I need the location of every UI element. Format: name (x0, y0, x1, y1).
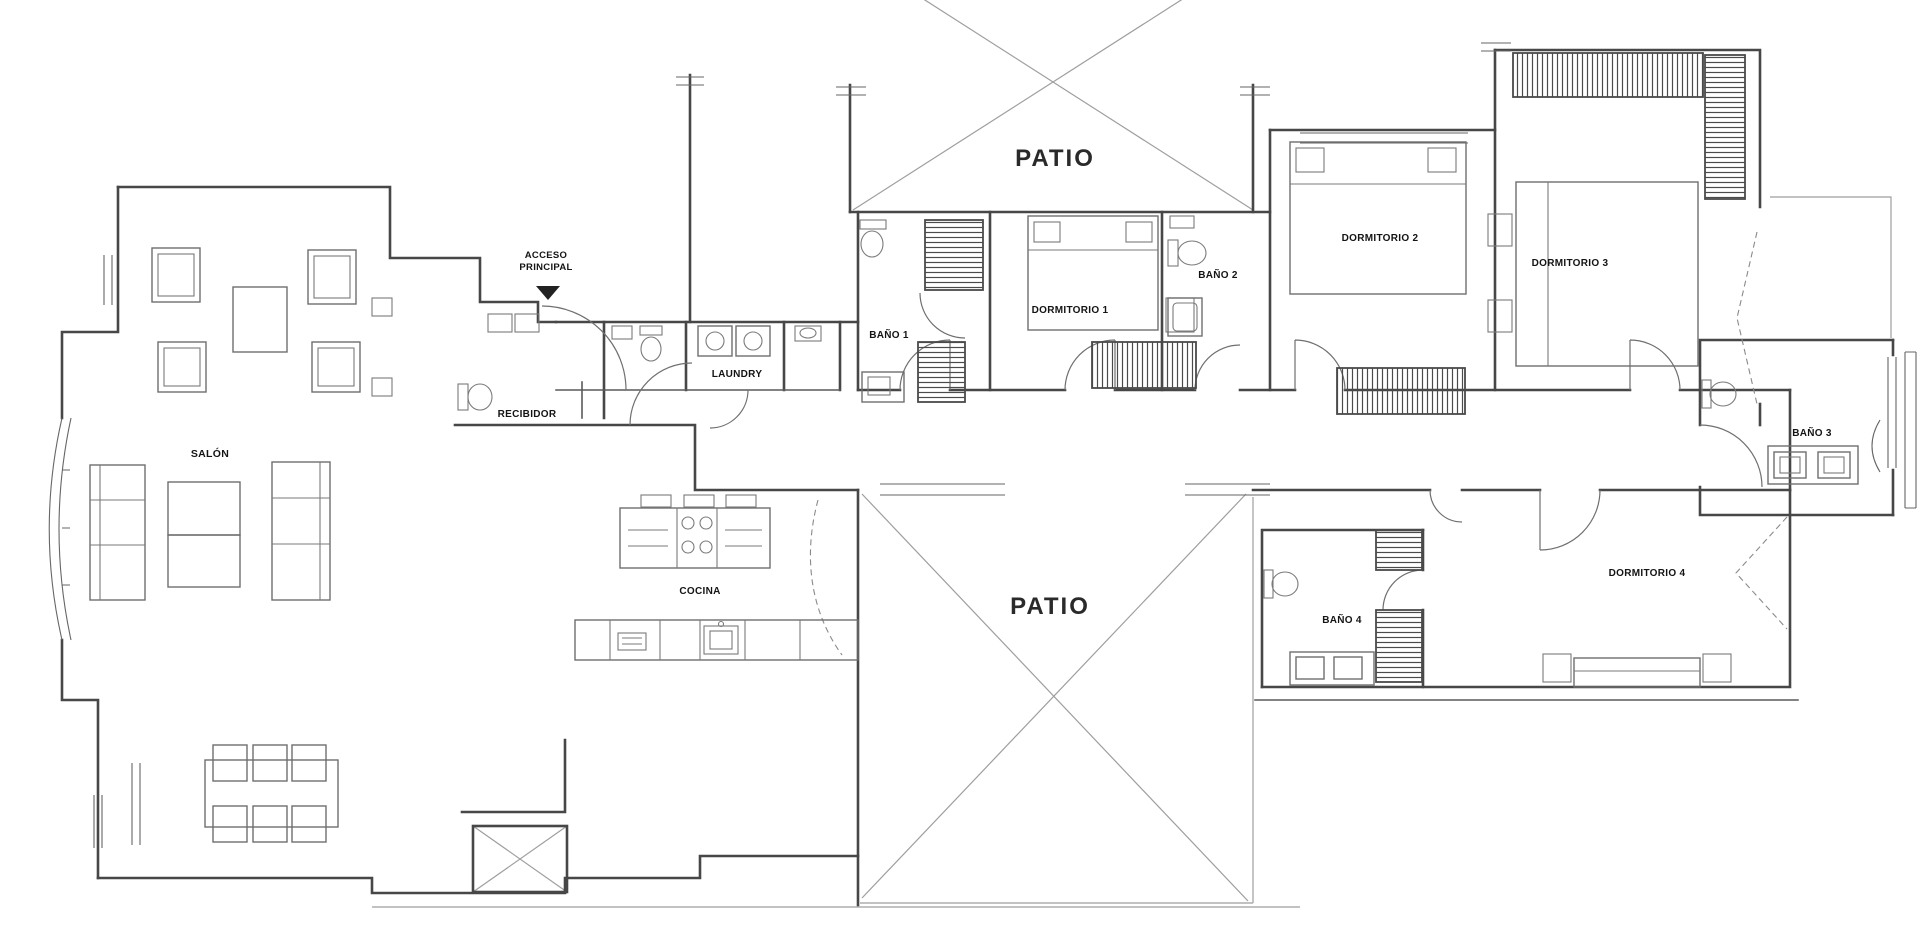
closet-bano1-top (925, 220, 983, 290)
closet-bano4-bottom (1376, 610, 1422, 682)
room-label-dormitorio-3: DORMITORIO 3 (1532, 258, 1609, 269)
bed-dorm3 (1488, 182, 1698, 366)
salon-armchairs (152, 248, 392, 396)
room-label-salon: SALÓN (191, 447, 229, 460)
room-label-bano-2: BAÑO 2 (1198, 268, 1238, 281)
bed-dorm4 (1543, 654, 1731, 687)
kitchen-counter (575, 620, 858, 660)
kitchen-island (620, 495, 770, 568)
patio-cross-lines (372, 0, 1891, 907)
room-label-dormitorio-1: DORMITORIO 1 (1032, 305, 1109, 316)
bath4-fixtures (1264, 570, 1374, 685)
entrance-arrow-icon (536, 286, 560, 300)
wardrobe-dorm3-side (1705, 55, 1745, 199)
room-label-recibidor: RECIBIDOR (498, 409, 557, 420)
bed-dorm2 (1290, 142, 1466, 294)
salon-sofas (90, 462, 330, 600)
room-label-laundry: LAUNDRY (712, 369, 763, 380)
room-label-patio-bottom: PATIO (1010, 593, 1090, 620)
wardrobe-dorm2 (1337, 368, 1465, 414)
floor-plan-svg: ACCESOPRINCIPALSALÓNRECIBIDORLAUNDRYCOCI… (0, 0, 1920, 926)
closet-corridor (1092, 342, 1196, 388)
room-label-bano-3: BAÑO 3 (1792, 426, 1832, 439)
room-label-acceso-line2: PRINCIPAL (519, 262, 572, 273)
room-label-bano-4: BAÑO 4 (1322, 613, 1362, 626)
windows-layer (49, 43, 1916, 848)
closet-bano4-top (1376, 530, 1422, 570)
bath1-fixtures (860, 220, 904, 402)
door-arcs-layer (542, 293, 1762, 610)
room-label-dormitorio-2: DORMITORIO 2 (1342, 233, 1419, 244)
room-label-cocina: COCINA (679, 586, 720, 597)
wardrobe-dorm3-top (1513, 53, 1703, 97)
room-label-bano-1: BAÑO 1 (869, 328, 909, 341)
bath3-fixtures (1702, 380, 1858, 484)
dining-table (205, 745, 338, 842)
floor-plan-canvas: ACCESOPRINCIPALSALÓNRECIBIDORLAUNDRYCOCI… (0, 0, 1920, 926)
room-label-acceso-line1: ACCESO (525, 250, 567, 261)
laundry-fixtures (458, 314, 821, 410)
closet-bano1-bottom (918, 342, 965, 402)
room-label-dormitorio-4: DORMITORIO 4 (1609, 568, 1686, 579)
room-label-patio-top: PATIO (1015, 145, 1095, 172)
labels-layer: ACCESOPRINCIPALSALÓNRECIBIDORLAUNDRYCOCI… (191, 145, 1832, 626)
